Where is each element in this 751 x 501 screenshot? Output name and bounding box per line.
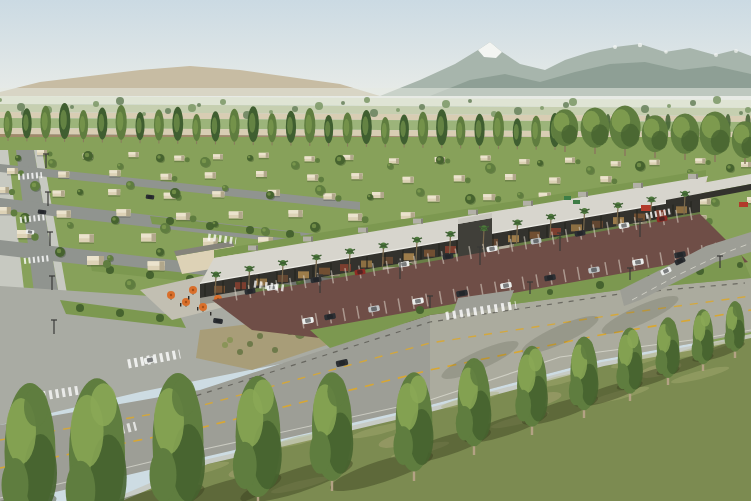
umbrella-top	[170, 294, 172, 296]
lawn-tree-light	[68, 223, 71, 226]
distant-tree	[341, 101, 345, 105]
lawn-tree-light	[368, 195, 371, 198]
house-shadow	[176, 220, 190, 222]
house-side	[410, 177, 413, 183]
house-side	[462, 175, 465, 181]
yard-tree	[172, 176, 178, 182]
house-shadow	[403, 183, 414, 185]
house-shadow	[161, 180, 172, 182]
storefront-glow	[424, 250, 435, 257]
house-shadow	[481, 161, 491, 163]
fg-tree-top	[90, 383, 116, 426]
rooftop-unit-side	[366, 228, 368, 233]
big-tree-dark	[681, 130, 698, 151]
house-side	[126, 209, 130, 216]
distant-tree	[419, 104, 425, 110]
house-shadow	[307, 181, 318, 183]
big-tree-dark	[711, 130, 730, 153]
fg-tree-top	[410, 375, 427, 403]
house-side	[557, 178, 560, 184]
house-side	[657, 160, 660, 165]
distant-tree	[514, 107, 522, 115]
lawn-tree-light	[467, 196, 472, 201]
fg-tree-lobe	[725, 329, 735, 349]
lawn-tree-light	[388, 164, 391, 167]
house-side	[350, 155, 353, 160]
house-side	[298, 210, 302, 217]
house-shadow	[288, 217, 302, 219]
lawn-tree-light	[32, 183, 37, 188]
lawn-tree-light	[213, 222, 216, 225]
distant-tree	[292, 106, 298, 112]
storefront-glow	[676, 206, 687, 213]
fg-tree-lobe	[456, 406, 473, 441]
person	[197, 307, 198, 311]
house-shadow	[565, 163, 575, 165]
rooftop-unit-side	[421, 219, 423, 224]
lawn-tree-light	[49, 160, 53, 164]
house-side	[7, 207, 11, 214]
house-shadow	[0, 193, 9, 195]
fg-tree-lobe	[150, 448, 177, 501]
house-side	[608, 176, 611, 182]
poplar-highlight	[325, 121, 330, 137]
yard-tree	[318, 177, 324, 183]
distant-tree	[188, 104, 196, 112]
distant-tree	[93, 101, 99, 107]
distant-tree	[364, 97, 370, 103]
car-glass	[40, 210, 45, 214]
house-side	[159, 261, 164, 270]
rooftop-unit-side	[476, 210, 478, 215]
house-side	[396, 159, 399, 164]
house-shadow	[428, 202, 440, 204]
person	[188, 296, 189, 300]
poplar-highlight	[532, 122, 538, 139]
lawn-tree-light	[688, 170, 691, 173]
poplar-highlight	[494, 118, 500, 138]
fg-tree-top	[24, 388, 48, 427]
lawn-tree-light	[248, 156, 251, 159]
house-shadow	[695, 163, 705, 165]
house-side	[359, 173, 362, 179]
yard-tree	[362, 216, 369, 223]
lawn-tree-light	[292, 162, 296, 166]
rooftop-unit-side	[586, 192, 588, 197]
poplar-highlight	[457, 122, 462, 138]
house-shadow	[109, 176, 120, 178]
house-side	[186, 213, 190, 220]
yard-tree	[11, 210, 18, 217]
shrub	[257, 333, 263, 339]
house-shadow	[229, 218, 243, 220]
house-shadow	[212, 197, 224, 199]
fg-tree-lobe	[616, 363, 629, 389]
poplar-highlight	[174, 113, 180, 132]
house-shadow	[549, 184, 560, 186]
house-shadow	[650, 165, 660, 167]
lawn-tree	[77, 189, 83, 195]
house-shadow	[116, 216, 130, 218]
distant-tree	[165, 108, 171, 114]
fg-tree-top	[627, 330, 639, 349]
poplar-highlight	[476, 120, 482, 138]
lawn-tree	[367, 194, 373, 200]
fg-tree-lobe	[515, 390, 531, 422]
lawn-tree	[117, 163, 123, 169]
house-shadow	[611, 166, 621, 168]
distant-tree	[713, 96, 721, 104]
lawn-tree	[247, 155, 253, 161]
fg-tree-top	[327, 376, 346, 407]
lawn-tree	[537, 160, 543, 166]
lawn-tree-light	[157, 249, 161, 253]
house-side	[90, 234, 95, 242]
lawn-tree-light	[85, 153, 90, 158]
car-glass	[28, 230, 33, 234]
house-shadow	[79, 242, 94, 244]
lawn-tree	[212, 221, 218, 227]
fg-tree-lobe	[655, 350, 667, 374]
sign	[564, 196, 571, 200]
fg-tree-top	[701, 311, 711, 327]
house-side	[239, 211, 243, 218]
aerial-rendering	[0, 0, 751, 501]
house-shadow	[256, 177, 267, 179]
house-shadow	[17, 238, 32, 240]
umbrella-top	[192, 289, 194, 291]
storefront-glow	[319, 268, 330, 275]
poplar-highlight	[23, 114, 28, 131]
poplar-highlight	[193, 120, 198, 135]
house-side	[220, 154, 223, 159]
lawn-tree-light	[223, 186, 226, 189]
house-shadow	[351, 179, 362, 181]
lawn-tree	[222, 185, 228, 191]
storefront-glow	[382, 257, 393, 264]
median-tree	[146, 271, 154, 279]
big-tree-dark	[591, 124, 608, 145]
poplar-highlight	[212, 117, 217, 134]
poplar-highlight	[230, 115, 236, 133]
umbrella-top	[202, 306, 204, 308]
house-shadow	[348, 221, 362, 223]
lawn-tree-light	[712, 199, 716, 203]
lawn-tree-light	[538, 161, 541, 164]
car-glass	[148, 195, 153, 199]
umbrella-top	[185, 301, 187, 303]
house-side	[264, 171, 267, 177]
house-side	[221, 191, 225, 197]
lawn-tree-light	[162, 225, 167, 230]
house-shadow	[323, 199, 335, 201]
rooftop-unit-side	[641, 183, 643, 188]
poplar-highlight	[382, 123, 387, 138]
house-side	[618, 161, 621, 166]
house-side	[276, 190, 280, 196]
poplar-highlight	[155, 116, 161, 133]
distant-tree	[17, 103, 25, 111]
poplar-highlight	[249, 113, 255, 133]
house-side	[513, 174, 516, 180]
house-shadow	[305, 161, 315, 163]
house-shadow	[454, 181, 465, 183]
sign	[739, 202, 748, 207]
yard-tree	[315, 158, 320, 163]
shrub	[272, 347, 278, 353]
distant-tree	[569, 98, 577, 106]
house-shadow	[698, 204, 710, 206]
fg-tree-top	[470, 361, 485, 386]
lawn-tree-light	[487, 165, 492, 170]
poplar-highlight	[400, 120, 405, 137]
house-shadow	[87, 265, 104, 267]
house-side	[66, 172, 69, 178]
yard-tree	[706, 160, 711, 165]
house-side	[117, 170, 120, 176]
rooftop-unit-side	[531, 201, 533, 206]
house-shadow	[141, 242, 156, 244]
lawn-tree-light	[417, 189, 421, 193]
lawn-tree-light	[637, 163, 642, 168]
house-shadow	[164, 199, 176, 201]
lawn-tree-light	[112, 217, 116, 221]
shrub	[227, 337, 233, 343]
fg-tree-top	[733, 303, 742, 317]
sign	[573, 200, 580, 204]
house-side	[213, 172, 216, 178]
median-small-tree	[416, 306, 424, 314]
yard-tree	[185, 157, 190, 162]
house-side	[15, 168, 18, 174]
house-shadow	[483, 200, 495, 202]
lawn-tree-light	[267, 192, 271, 196]
yard-tree	[9, 189, 15, 195]
house-side	[315, 175, 318, 181]
lawn-tree-light	[157, 155, 161, 159]
distant-tree	[563, 102, 569, 108]
poplar-highlight	[514, 124, 519, 140]
distant-tree	[116, 97, 124, 105]
house-side	[358, 214, 362, 221]
house-shadow	[174, 161, 184, 163]
house-side	[117, 189, 121, 195]
house-side	[61, 191, 65, 197]
lawn-tree-light	[78, 190, 81, 193]
yard-tree	[190, 215, 197, 222]
house-side	[332, 193, 336, 199]
distant-tree	[197, 103, 201, 107]
median-small-tree	[547, 289, 553, 295]
rooftop-unit-side	[696, 174, 698, 179]
distant-tree	[641, 105, 649, 113]
lawn-tree	[387, 163, 393, 169]
lawn-tree-light	[587, 167, 591, 171]
median-tree	[76, 304, 84, 312]
fg-tree-top	[172, 378, 196, 417]
big-tree-dark	[561, 125, 577, 144]
median-small-tree	[737, 262, 743, 268]
lawn-tree-light	[727, 165, 731, 169]
big-tree-dark	[621, 124, 640, 147]
poplar-highlight	[80, 116, 85, 132]
fg-tree-lobe	[393, 426, 412, 465]
poplar-highlight	[137, 118, 142, 134]
house-side	[152, 234, 157, 242]
poplar-highlight	[60, 110, 66, 130]
yard-tree	[465, 178, 471, 184]
house-side	[380, 192, 384, 198]
fg-tree-top	[581, 339, 594, 360]
distant-tree	[468, 99, 472, 103]
lawn-tree-light	[57, 249, 62, 254]
lawn-tree-light	[437, 157, 441, 161]
sign	[641, 205, 651, 211]
house-side	[168, 174, 171, 180]
lawn-tree-light	[312, 224, 317, 229]
house-shadow	[53, 197, 65, 199]
fg-tree-lobe	[569, 377, 583, 406]
fg-tree-top	[528, 348, 542, 371]
house-side	[526, 159, 529, 164]
house-side	[5, 187, 9, 193]
lawn-tree-light	[16, 156, 19, 159]
distant-tree	[667, 104, 671, 108]
lawn-tree-light	[127, 281, 132, 286]
distant-tree	[315, 102, 323, 110]
yard-tree	[612, 178, 618, 184]
house-side	[181, 156, 184, 161]
person	[210, 312, 211, 316]
house-shadow	[213, 159, 223, 161]
median-tree	[156, 314, 164, 322]
storefront-glow	[403, 253, 414, 260]
poplar-highlight	[42, 112, 48, 130]
poplar-highlight	[419, 118, 425, 136]
lawn-tree	[15, 155, 21, 161]
rooftop-unit-side	[256, 245, 258, 250]
house-side	[492, 194, 496, 200]
house-side	[312, 156, 315, 161]
house-side	[136, 152, 139, 157]
house-shadow	[205, 178, 216, 180]
median-small-tree	[596, 281, 604, 289]
distant-tree	[70, 105, 74, 109]
house-side	[707, 198, 711, 204]
lawn-tree-light	[518, 193, 521, 196]
shrub	[237, 349, 243, 355]
lawn-tree	[107, 255, 113, 261]
distant-tree	[396, 108, 400, 112]
house-shadow	[148, 270, 165, 272]
poplar-highlight	[287, 117, 293, 135]
shrub	[247, 341, 253, 347]
shrub	[222, 342, 228, 348]
lawn-tree-light	[108, 256, 111, 259]
lawn-tree-light	[202, 159, 207, 164]
lawn-tree-light	[127, 182, 131, 186]
house-side	[702, 158, 705, 163]
scene-canvas	[0, 0, 751, 501]
median-tree	[116, 309, 124, 317]
house-side	[572, 158, 575, 163]
person	[180, 303, 181, 307]
big-tree-dark	[651, 131, 667, 150]
house-side	[266, 153, 269, 158]
house-shadow	[519, 164, 529, 166]
distant-tree	[220, 99, 226, 105]
lawn-tree-light	[172, 190, 177, 195]
poplar-highlight	[5, 117, 10, 132]
yard-tree	[335, 195, 341, 201]
poplar-highlight	[268, 119, 273, 135]
house-side	[436, 196, 440, 202]
distant-tree	[540, 106, 544, 110]
poplar-highlight	[438, 116, 444, 136]
distant-tree	[370, 109, 378, 117]
house-shadow	[108, 195, 120, 197]
house-shadow	[741, 167, 751, 169]
house-side	[488, 156, 491, 161]
lawn-tree	[67, 222, 73, 228]
poplar-highlight	[117, 111, 123, 131]
distant-tree	[739, 111, 743, 115]
house-shadow	[259, 158, 269, 160]
poplar-highlight	[98, 114, 104, 132]
lawn-tree-light	[317, 187, 322, 192]
house-side	[66, 211, 70, 218]
median-tree	[286, 230, 294, 238]
fg-tree-top	[253, 380, 274, 414]
house-shadow	[7, 174, 18, 176]
poplar-highlight	[362, 116, 368, 135]
house-roof	[747, 197, 751, 200]
lawn-tree-light	[262, 228, 266, 232]
lawn-tree-light	[118, 164, 121, 167]
house-shadow	[58, 178, 69, 180]
house-shadow	[600, 182, 611, 184]
poplar-highlight	[306, 115, 312, 135]
fg-tree-top	[665, 319, 676, 336]
house-shadow	[129, 157, 139, 159]
fg-tree-lobe	[310, 431, 331, 473]
yard-tree	[445, 159, 450, 164]
distant-tree	[442, 100, 450, 108]
lawn-tree-light	[337, 157, 342, 162]
distant-tree	[690, 100, 696, 106]
yard-tree	[576, 159, 581, 164]
house-shadow	[505, 180, 516, 182]
median-tree	[246, 226, 254, 234]
car-glass	[215, 319, 220, 323]
distant-tree	[745, 107, 751, 113]
fg-tree-lobe	[233, 442, 257, 490]
lawn-tree	[517, 192, 523, 198]
house-shadow	[57, 218, 71, 220]
house-shadow	[0, 214, 11, 216]
poplar-highlight	[344, 119, 350, 136]
fg-tree-lobe	[692, 339, 703, 361]
rooftop-unit-side	[311, 237, 313, 242]
yard-tree	[495, 196, 501, 202]
